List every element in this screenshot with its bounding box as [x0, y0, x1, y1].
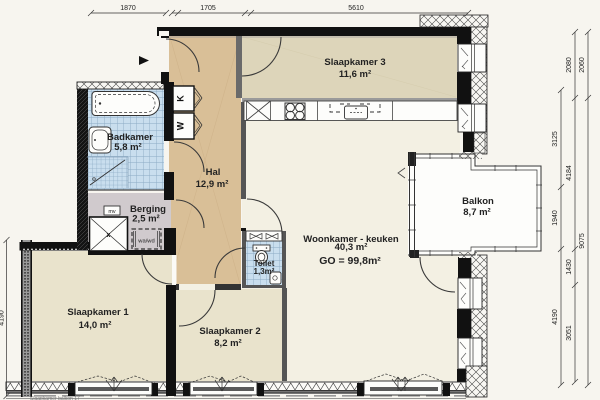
svg-text:mv: mv	[108, 209, 116, 215]
svg-text:x: x	[107, 232, 111, 239]
svg-text:4190: 4190	[0, 310, 6, 326]
svg-text:4190: 4190	[552, 309, 559, 325]
svg-text:5610: 5610	[348, 5, 364, 12]
svg-text:3051: 3051	[566, 325, 573, 341]
svg-text:1940: 1940	[552, 210, 559, 226]
svg-text:Hal: Hal	[206, 167, 221, 178]
svg-text:2,5 m²: 2,5 m²	[132, 214, 159, 225]
svg-text:11,6 m²: 11,6 m²	[339, 69, 371, 80]
svg-text:8,7 m²: 8,7 m²	[463, 207, 490, 218]
svg-text:3125: 3125	[552, 131, 559, 147]
svg-text:9075: 9075	[579, 233, 586, 249]
svg-text:14,0 m²: 14,0 m²	[79, 320, 112, 331]
svg-text:Slaapkamer balkon 17: Slaapkamer balkon 17	[30, 396, 80, 400]
svg-text:wa/wd: wa/wd	[137, 239, 154, 245]
svg-text:5,8 m²: 5,8 m²	[114, 142, 141, 153]
svg-text:W: W	[176, 121, 186, 130]
svg-text:2080: 2080	[566, 57, 573, 73]
svg-text:1,3m²: 1,3m²	[254, 267, 275, 276]
svg-text:12,9 m²: 12,9 m²	[196, 179, 229, 190]
svg-text:8,2 m²: 8,2 m²	[214, 338, 241, 349]
svg-text:Slaapkamer 2: Slaapkamer 2	[199, 326, 260, 337]
svg-text:1705: 1705	[200, 5, 216, 12]
svg-text:2060: 2060	[579, 57, 586, 73]
svg-text:1870: 1870	[120, 5, 136, 12]
svg-text:1430: 1430	[566, 259, 573, 275]
svg-text:GO = 99,8m²: GO = 99,8m²	[319, 255, 381, 267]
svg-text:K: K	[176, 95, 186, 102]
svg-text:4184: 4184	[566, 165, 573, 181]
svg-text:40,3 m²: 40,3 m²	[335, 242, 368, 253]
svg-text:Balkon: Balkon	[462, 196, 494, 207]
svg-text:Slaapkamer 1: Slaapkamer 1	[67, 307, 129, 318]
svg-text:Slaapkamer 3: Slaapkamer 3	[324, 57, 385, 68]
